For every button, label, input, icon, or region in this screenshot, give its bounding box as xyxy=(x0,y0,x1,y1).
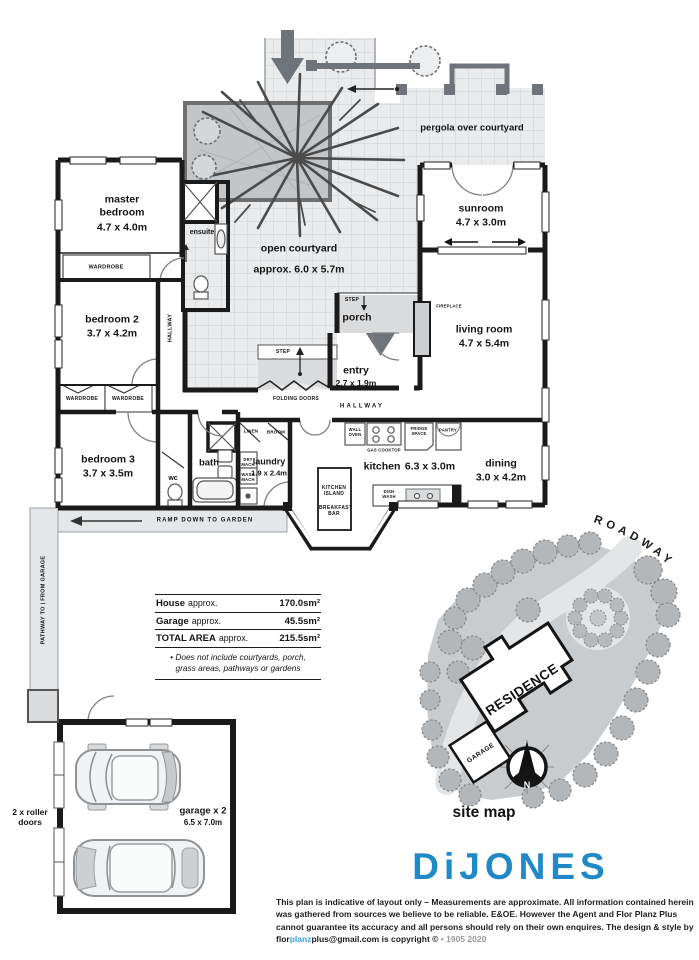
site-map: RESIDENCE GARAGE N ROADWAY xyxy=(420,514,680,808)
room-label-laundry: laundry xyxy=(253,457,286,468)
room-label-kitchen: kitchen xyxy=(364,461,401,474)
wardrobe-label-3: WARDROBE xyxy=(112,396,144,402)
room-label-sunroom: sunroom xyxy=(459,203,504,216)
disclaimer-link-word: planz xyxy=(290,934,312,944)
breakfast-bar-label: BREAKFAST BAR xyxy=(319,505,349,517)
table-note: • Does not include courtyards, porch, gr… xyxy=(155,648,321,680)
car-icon-2 xyxy=(74,840,204,896)
wardrobe-label-1: WARDROBE xyxy=(88,265,123,272)
room-dims-master: 4.7 x 4.0m xyxy=(97,222,147,235)
room-label-courtyard: open courtyard xyxy=(260,243,338,256)
row-value: 170.0sm² xyxy=(279,598,320,609)
roller-doors-label: 2 x roller doors xyxy=(7,807,53,827)
room-dims-kitchen: 6.3 x 3.0m xyxy=(405,461,455,474)
room-dims-garage: 6.5 x 7.0m xyxy=(184,818,222,828)
room-label-bedroom3: bedroom 3 xyxy=(81,454,135,467)
pathway-label: PATHWAY TO | FROM GARAGE xyxy=(41,525,48,675)
slider-arrows-icon xyxy=(444,238,526,246)
room-label-bedroom2: bedroom 2 xyxy=(85,314,139,327)
pergola-label: pergola over courtyard xyxy=(392,122,552,133)
fireplace-label: FIREPLACE xyxy=(436,303,462,308)
table-note-line2: grass areas, pathways or gardens xyxy=(157,663,319,674)
room-label-bath: bath xyxy=(199,457,219,468)
row-qualifier: approx. xyxy=(188,598,217,608)
car-icon-1 xyxy=(76,744,180,810)
compass-icon: N xyxy=(500,740,554,794)
room-dims-sunroom: 4.7 x 3.0m xyxy=(456,217,506,230)
row-name: Garage xyxy=(156,616,189,627)
room-dims-bedroom3: 3.7 x 3.5m xyxy=(83,468,133,481)
step-label-2: STEP xyxy=(345,297,359,303)
disclaimer-text: This plan is indicative of layout only –… xyxy=(276,896,697,945)
table-note-line1: • Does not include courtyards, porch, xyxy=(157,652,319,663)
hallway-label-horizontal: HALLWAY xyxy=(340,403,384,410)
fridge-space-label: FRIDGE SPACE xyxy=(408,426,430,436)
row-name: House xyxy=(156,598,185,609)
site-map-caption: site map xyxy=(453,804,516,822)
table-row: TOTAL AREAapprox. 215.5sm² xyxy=(155,630,321,648)
room-dims-entry: 2.7 x 1.9m xyxy=(336,378,377,388)
linen-label: LINEN xyxy=(244,428,259,433)
room-dims-dining: 3.0 x 4.2m xyxy=(476,472,526,485)
hallway-label-vertical: HALLWAY xyxy=(168,314,175,342)
row-qualifier: approx. xyxy=(219,633,248,643)
room-label-entry: entry xyxy=(343,365,369,378)
north-label: N xyxy=(524,780,531,790)
disclaimer-year: • 1905 2020 xyxy=(441,934,487,944)
row-value: 215.5sm² xyxy=(279,633,320,644)
wall-post xyxy=(452,485,461,507)
kitchen-island-label: KITCHEN ISLAND xyxy=(319,485,349,497)
row-qualifier: approx. xyxy=(192,616,221,626)
room-label-dining: dining xyxy=(485,458,517,471)
table-row: Garageapprox. 45.5sm² xyxy=(155,613,321,631)
broom-label: BROOM xyxy=(267,429,285,434)
ramp-label: RAMP DOWN TO GARDEN xyxy=(120,517,290,524)
room-label-living: living room xyxy=(439,324,529,337)
floor-plan-page: RESIDENCE GARAGE N ROADWAY master bedroo… xyxy=(0,0,699,960)
garage-store-box xyxy=(28,690,58,722)
room-label-porch: porch xyxy=(342,312,371,325)
gas-cooktop-label: GAS COOKTOP xyxy=(354,447,414,452)
folding-doors-label: FOLDING DOORS xyxy=(273,396,319,402)
room-label-ensuite: ensuite xyxy=(190,229,215,237)
room-dims-living: 4.7 x 5.4m xyxy=(459,338,509,351)
row-value: 45.5sm² xyxy=(285,616,320,627)
dish-wash-label: DISH WASH xyxy=(379,489,399,499)
wall-oven-label: WALL OVEN xyxy=(346,427,364,437)
room-dims-courtyard: approx. 6.0 x 5.7m xyxy=(234,264,364,277)
room-label-wc: wc xyxy=(168,475,177,483)
row-name: TOTAL AREA xyxy=(156,633,216,644)
table-row: Houseapprox. 170.0sm² xyxy=(155,595,321,613)
room-label-master: master bedroom xyxy=(86,193,158,218)
fireplace-block xyxy=(414,302,430,356)
brand-logo: DiJONES xyxy=(388,846,634,888)
pantry-label: PANTRY xyxy=(438,427,458,432)
areas-table: Houseapprox. 170.0sm² Garageapprox. 45.5… xyxy=(155,594,321,680)
disclaimer-line3c: plus@gmail.com is copyright © xyxy=(311,934,438,944)
step-label-1: STEP xyxy=(276,349,290,355)
room-label-garage: garage x 2 xyxy=(180,805,227,816)
room-dims-laundry: 1.9 x 2.4m xyxy=(251,469,287,478)
room-dims-bedroom2: 3.7 x 4.2m xyxy=(87,328,137,341)
wardrobe-label-2: WARDROBE xyxy=(66,396,98,402)
